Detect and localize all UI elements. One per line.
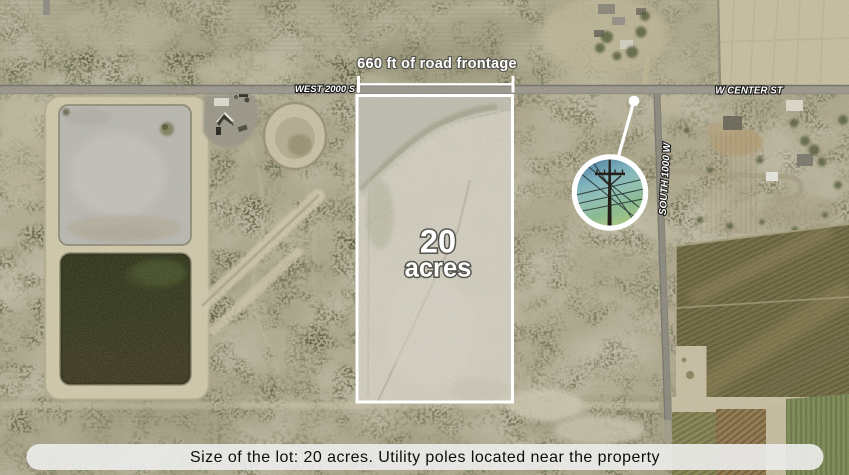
svg-text:WEST 2000 S: WEST 2000 S [295, 84, 356, 95]
svg-text:660 ft of road frontage: 660 ft of road frontage [357, 56, 517, 72]
svg-text:Size of the lot: 20 acres. Uti: Size of the lot: 20 acres. Utility poles… [190, 449, 660, 466]
svg-text:W CENTER ST: W CENTER ST [715, 86, 784, 97]
svg-text:acres: acres [405, 255, 472, 283]
